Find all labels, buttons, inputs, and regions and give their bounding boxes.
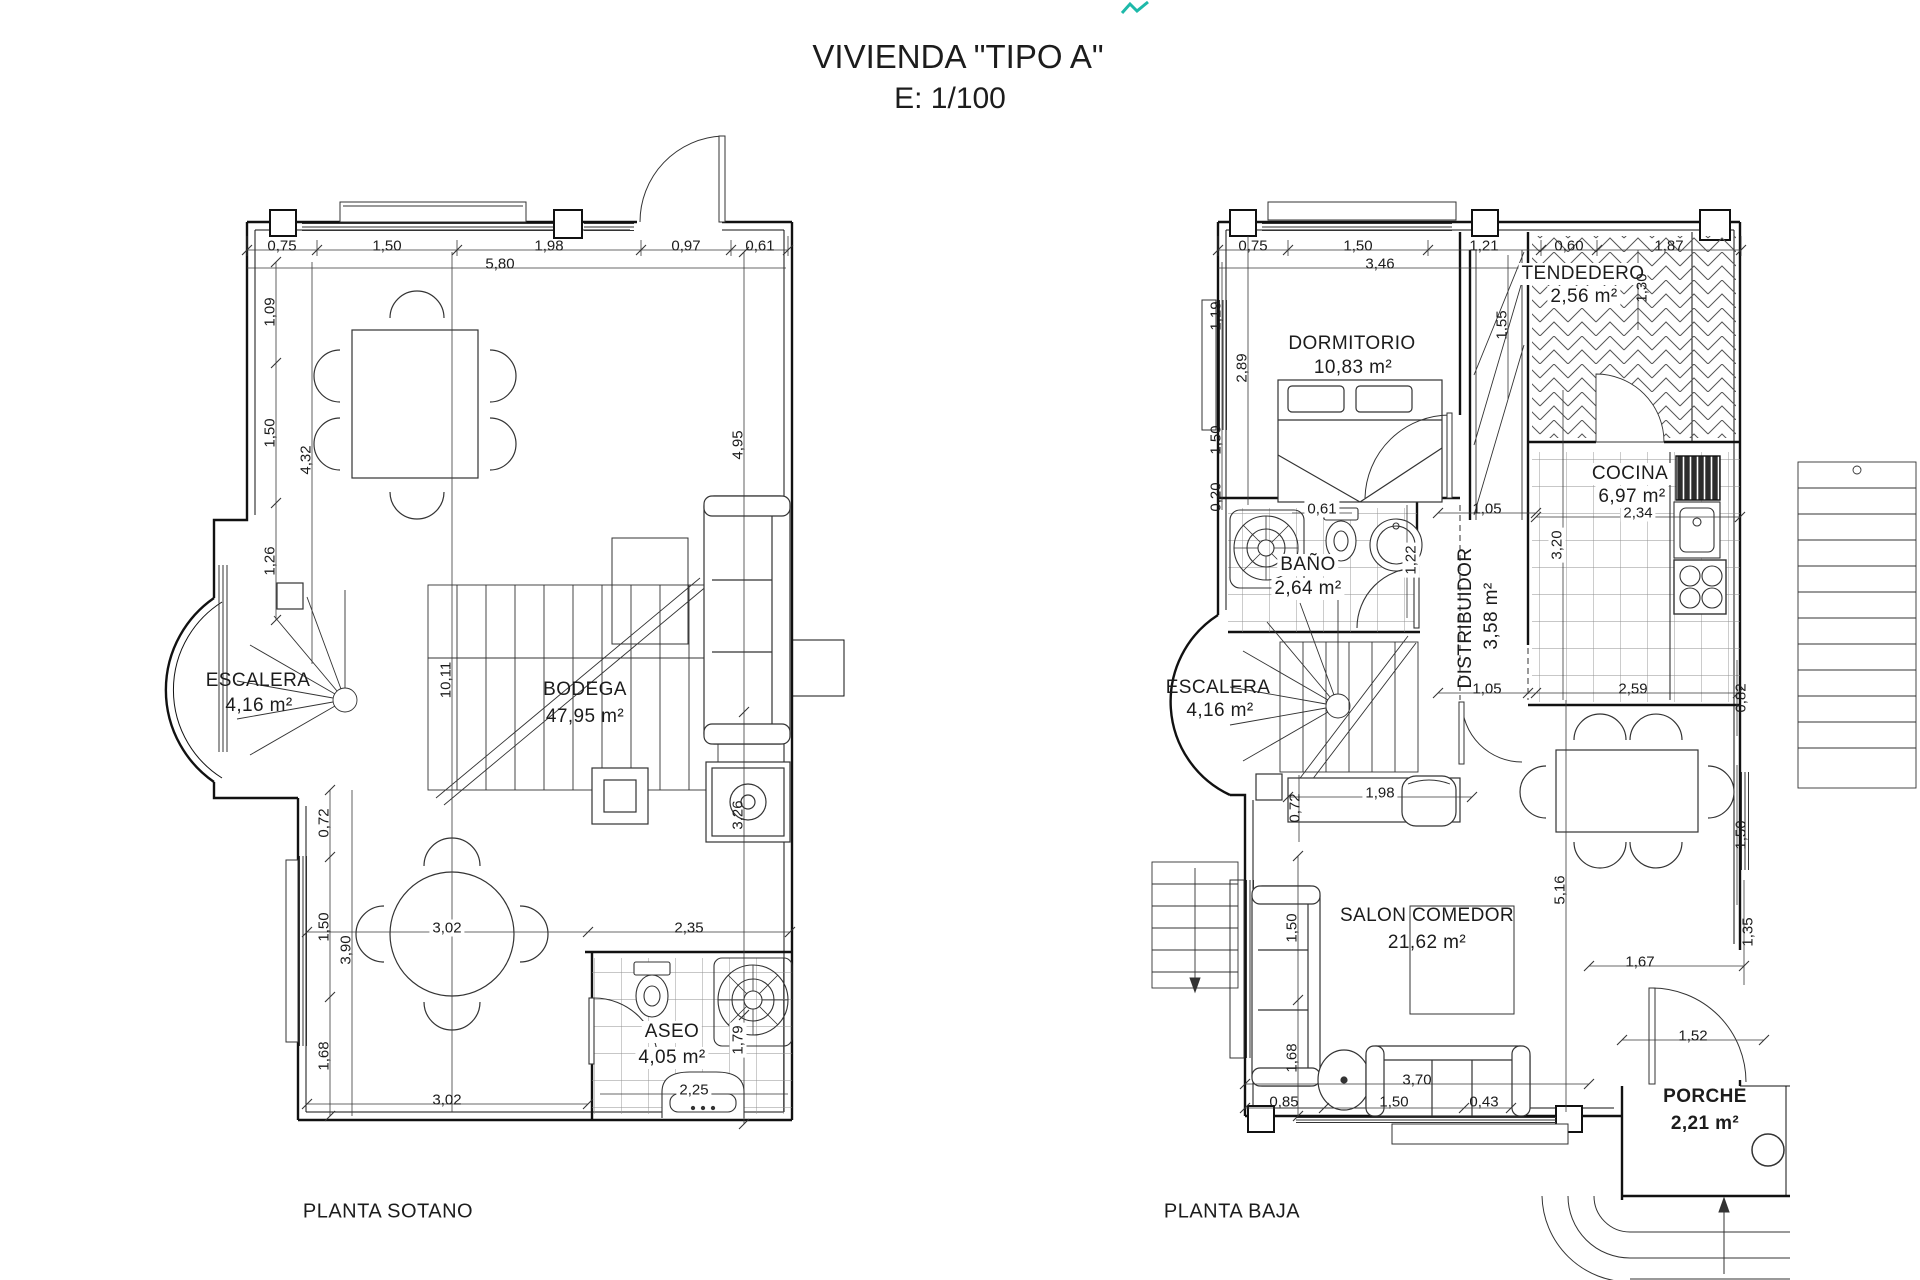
baja-dim-hall-0: 1,05	[1472, 501, 1501, 518]
baja-dim-salon-3: 5,16	[1552, 875, 1569, 904]
baja-dim-bottom-total: 3,70	[1402, 1072, 1431, 1089]
baja-room-dormitorio-name: DORMITORIO	[1288, 333, 1415, 355]
baja-dim-salon-0: 2,59	[1618, 681, 1647, 698]
baja-room-tendedero-area: 2,56 m²	[1547, 286, 1620, 308]
baja-dim-left-2: 1,50	[1208, 425, 1225, 454]
sotano-floor-label: PLANTA SOTANO	[303, 1201, 473, 1224]
baja-dormitorio-furniture	[1278, 380, 1442, 502]
baja-room-salon-area: 21,62 m²	[1388, 932, 1466, 954]
sotano-dim-top-0: 0,75	[267, 238, 296, 255]
sotano-dim-left-0: 1,09	[262, 297, 279, 326]
teal-print-mark	[1122, 2, 1148, 13]
baja-room-distribuidor-name: DISTRIBUIDOR	[1455, 548, 1477, 689]
baja-room-escalera-area: 4,16 m²	[1186, 700, 1253, 722]
sheet-scale: E: 1/100	[894, 82, 1006, 116]
sotano-room-aseo-name: ASEO	[642, 1021, 702, 1043]
baja-dim-bano-0: 0,61	[1304, 501, 1339, 518]
sotano-dim-top-total: 5,80	[485, 256, 514, 273]
baja-dim-stair-0: 1,98	[1362, 785, 1397, 802]
baja-dim-hall-1: 1,05	[1472, 681, 1501, 698]
sotano-dim-top-2: 1,98	[534, 238, 563, 255]
sotano-dim-mid-0: 3,02	[429, 920, 464, 937]
sotano-dim-top-3: 0,97	[671, 238, 700, 255]
baja-dim-bottom-2: 0,43	[1469, 1094, 1498, 1111]
exterior-stairs-left	[1152, 862, 1238, 992]
sotano-dim-right-1: 3,26	[730, 800, 747, 829]
baja-dim-top-0: 0,75	[1238, 238, 1267, 255]
baja-room-bano-area: 2,64 m²	[1271, 578, 1344, 600]
baja-dim-left-3: 0,20	[1208, 482, 1225, 511]
sotano-dim-bottom: 3,02	[432, 1092, 461, 1109]
floorplan-sheet: VIVIENDA "TIPO A" E: 1/100 ESCALERA 4,16…	[0, 0, 1920, 1280]
sheet-title: VIVIENDA "TIPO A"	[812, 38, 1103, 76]
baja-porch	[1542, 988, 1790, 1280]
sotano-dim-aseo-sink: 2,25	[676, 1082, 711, 1099]
baja-dim-top-1: 1,50	[1343, 238, 1372, 255]
baja-dim-salon-1: 0,82	[1733, 683, 1750, 712]
baja-room-porche-name: PORCHE	[1663, 1086, 1747, 1108]
baja-dim-top-3: 0,60	[1554, 238, 1583, 255]
exterior-stairs-right	[1798, 462, 1916, 788]
sotano-dim-right-2: 1,79	[730, 1022, 747, 1057]
sotano-dim-left-total: 4,32	[298, 445, 315, 474]
sotano-dim-left-2: 1,26	[262, 546, 279, 575]
baja-floor-label: PLANTA BAJA	[1164, 1201, 1300, 1224]
sotano-dim-top-1: 1,50	[372, 238, 401, 255]
baja-dim-top-4: 1,87	[1654, 238, 1683, 255]
sotano-room-escalera-area: 4,16 m²	[225, 695, 292, 717]
baja-dim-wardrobe: 1,55	[1494, 310, 1511, 339]
sotano-dim-right-0: 4,95	[730, 430, 747, 459]
baja-dim-salon-2: 1,50	[1733, 820, 1750, 849]
baja-dim-salonleft-1: 1,68	[1284, 1043, 1301, 1072]
sotano-room-escalera-name: ESCALERA	[206, 670, 311, 692]
baja-dim-left-0: 1,19	[1208, 301, 1225, 330]
baja-room-salon-name: SALON COMEDOR	[1340, 905, 1514, 927]
baja-dim-bano-1: 1,22	[1403, 542, 1420, 577]
sotano-dim-lowerleft-0: 0,72	[316, 808, 333, 837]
baja-dim-bottom-0: 0,85	[1269, 1094, 1298, 1111]
baja-dim-porch-1: 1,52	[1678, 1028, 1707, 1045]
baja-dim-porch-0: 1,67	[1625, 954, 1654, 971]
sotano-dim-height-total: 10,11	[438, 662, 455, 698]
sotano-dim-top-4: 0,61	[745, 238, 774, 255]
baja-dim-cocina-0: 2,34	[1620, 505, 1655, 522]
sotano-dim-lowerleft-total: 3,90	[338, 935, 355, 964]
sotano-entry-door	[640, 136, 725, 222]
baja-room-bano-name: BAÑO	[1277, 554, 1338, 576]
sotano-dim-lowerleft-2: 1,68	[316, 1041, 333, 1070]
baja-room-porche-area: 2,21 m²	[1671, 1113, 1739, 1135]
sotano-room-bodega-area: 47,95 m²	[546, 706, 624, 728]
baja-dim-left-1: 2,89	[1234, 353, 1251, 382]
baja-wardrobe	[1474, 250, 1524, 520]
baja-dim-top-2: 1,21	[1469, 238, 1498, 255]
sotano-dim-mid-1: 2,35	[674, 920, 703, 937]
baja-dim-cocina-1: 3,20	[1549, 527, 1566, 562]
baja-dim-salon-4: 1,35	[1740, 917, 1757, 946]
baja-dim-bottom-1: 1,50	[1379, 1094, 1408, 1111]
baja-dim-tendedero: 1,30	[1634, 273, 1651, 302]
sotano-dim-left-1: 1,50	[262, 418, 279, 447]
baja-room-tendedero-name: TENDEDERO	[1519, 263, 1648, 285]
baja-dim-top-total: 3,46	[1365, 256, 1394, 273]
baja-room-distribuidor-area: 3,58 m²	[1481, 582, 1503, 649]
sotano-room-aseo-area: 4,05 m²	[635, 1047, 708, 1069]
baja-dim-salonleft-0: 1,50	[1284, 913, 1301, 942]
sotano-dim-lowerleft-1: 1,50	[316, 912, 333, 941]
baja-room-escalera-name: ESCALERA	[1166, 677, 1271, 699]
baja-room-cocina-name: COCINA	[1589, 463, 1671, 485]
sotano-room-bodega-name: BODEGA	[543, 679, 627, 701]
baja-dim-stair-1: 0,72	[1287, 793, 1304, 822]
baja-room-dormitorio-area: 10,83 m²	[1314, 357, 1392, 379]
floorplan-linework	[0, 0, 1920, 1280]
sotano-furniture	[314, 291, 790, 1030]
